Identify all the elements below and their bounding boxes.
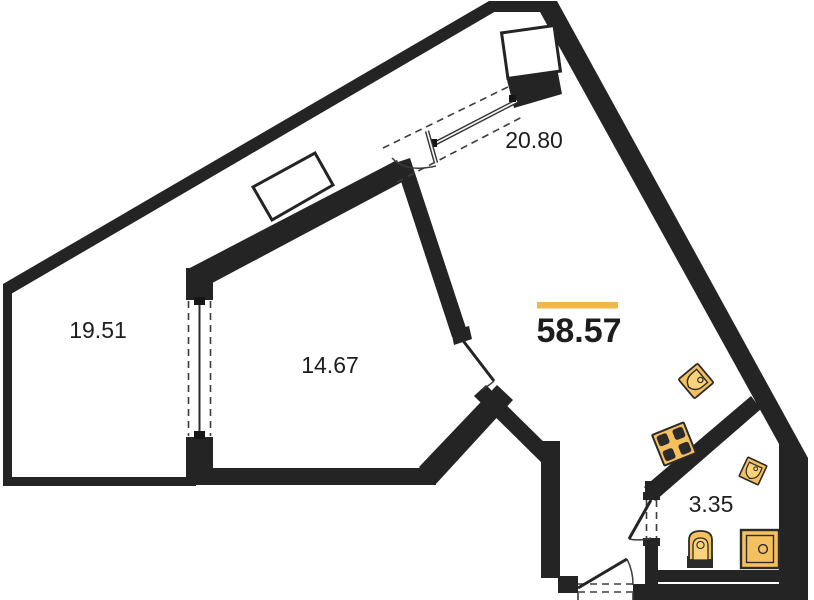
living-area-label: 20.80	[505, 127, 563, 153]
built-in-closet-icon	[502, 26, 561, 79]
entry-door-projection	[578, 584, 633, 600]
wall-bathroom-bottom	[652, 570, 779, 582]
wall-bedroom-right-upper	[395, 158, 467, 337]
window-cap-top	[194, 297, 205, 305]
labels: 58.57 19.51 14.67 20.80 3.35	[69, 127, 733, 517]
shower-unit-icon	[741, 530, 779, 568]
bathroom-door-leaf	[629, 500, 651, 539]
wall-bedroom-bottom	[205, 468, 436, 485]
kitchen-sink-icon	[678, 363, 713, 398]
entry-door-swing-arc	[627, 559, 633, 585]
bedroom-door-leaf	[461, 338, 494, 381]
toilet-icon	[687, 531, 713, 568]
wall-entry-left	[541, 441, 560, 578]
floor-plan-canvas: 58.57 19.51 14.67 20.80 3.35	[0, 0, 814, 600]
bedroom-area-label: 14.67	[301, 352, 359, 378]
wall-entry-foot	[558, 576, 578, 593]
window-cap-bottom	[194, 431, 205, 439]
bathroom-door-swing-arc	[629, 538, 651, 540]
bathroom-area-label: 3.35	[689, 491, 734, 517]
terrace-area-label: 19.51	[69, 317, 127, 343]
walls	[3, 1, 808, 600]
bathroom-sink-icon	[739, 457, 767, 485]
sliding-door-cap-far	[509, 95, 516, 102]
total-area-accent-bar	[537, 302, 618, 309]
wall-terrace-left	[3, 284, 12, 486]
floor-plan-page: 58.57 19.51 14.67 20.80 3.35	[0, 0, 814, 600]
wall-terrace-bottom	[3, 477, 196, 486]
wall-outer-bottom	[633, 584, 808, 600]
total-area-label: 58.57	[536, 312, 621, 350]
